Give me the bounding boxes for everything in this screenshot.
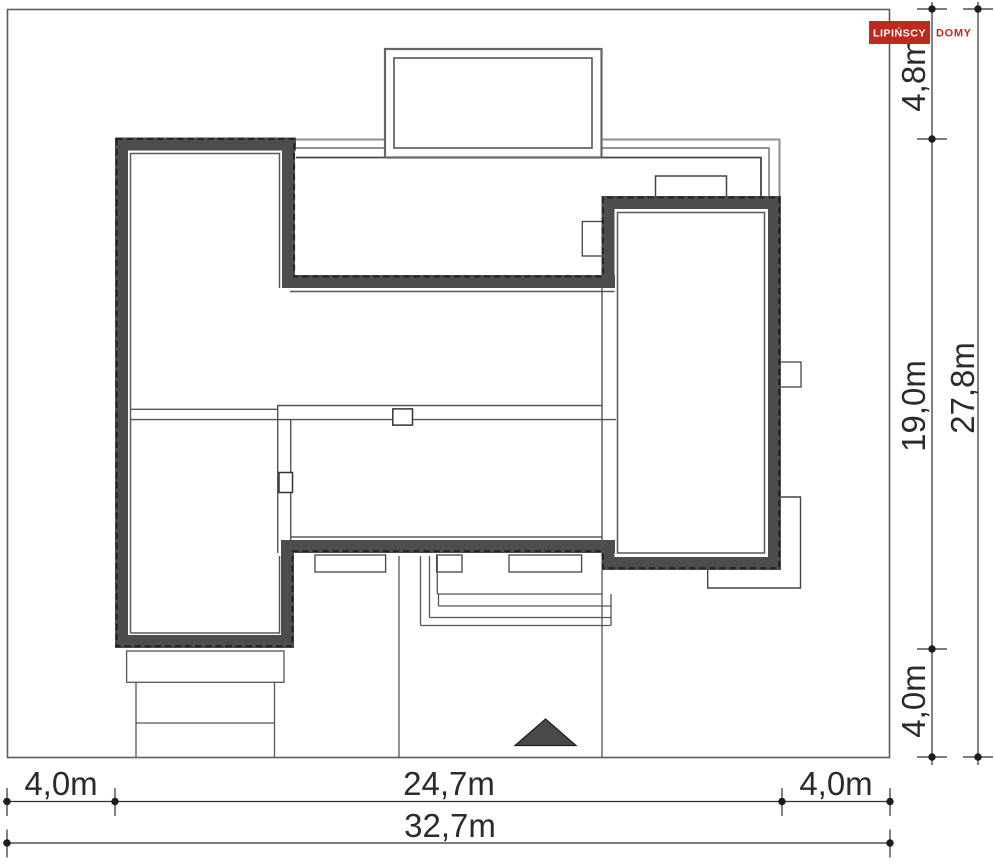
svg-text:4,8m: 4,8m	[895, 38, 932, 111]
svg-text:32,7m: 32,7m	[404, 807, 496, 844]
svg-text:4,0m: 4,0m	[799, 765, 872, 802]
svg-text:19,0m: 19,0m	[895, 360, 932, 452]
svg-text:4,0m: 4,0m	[895, 664, 932, 737]
svg-text:24,7m: 24,7m	[403, 765, 495, 802]
svg-text:DOMY: DOMY	[936, 28, 972, 40]
svg-text:LIPIŃSCY: LIPIŃSCY	[873, 27, 926, 40]
svg-text:27,8m: 27,8m	[944, 342, 981, 434]
svg-text:4,0m: 4,0m	[24, 765, 97, 802]
